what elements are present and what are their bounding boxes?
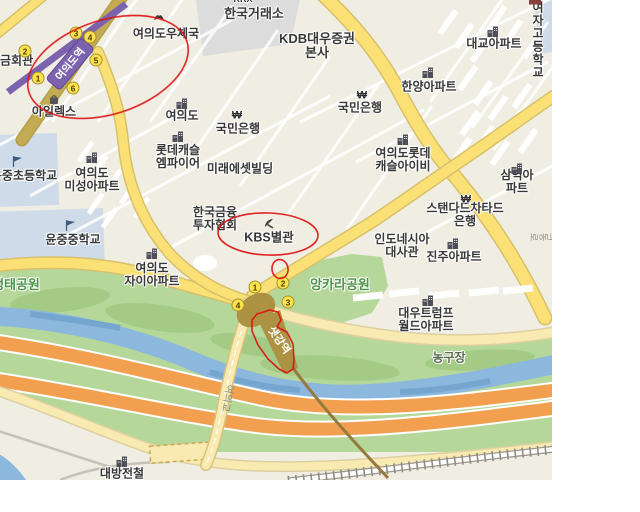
trump-world-apt-label: 대우트럼프 월드아파트 [398, 307, 453, 333]
yeouigyo-bridge-label: 여의교 [218, 383, 233, 412]
yeouido-exit-5: 5 [90, 54, 103, 67]
kdb-daewoo-hq-label: KDB대우증권 본사 [279, 32, 355, 60]
standard-chartered-label: 스탠다드차타드은행 [422, 202, 509, 228]
indonesia-embassy-label: 인도네시아 대사관 [374, 233, 429, 259]
apartment-icon [397, 133, 410, 145]
saetgang-exit-3: 3 [282, 296, 295, 309]
basketball-court-label: 농구장 [432, 352, 465, 365]
girls-high-school-label: 여의도여자 고등학교 [531, 0, 545, 79]
korea-exchange-label: 한국거래소 [224, 7, 284, 21]
jinju-apt-label: 진주아파트 [426, 251, 481, 264]
mirae-asset-label: 미래에셋빌딩 [207, 163, 273, 176]
yeouido-exit-4: 4 [84, 31, 97, 44]
krx-label-partial: KRX [233, 0, 252, 5]
yeouido-exit-2: 2 [19, 45, 32, 58]
yeouido-building-label: 여의도 [165, 110, 198, 123]
apartment-icon [422, 66, 435, 78]
kookmin-bank-west-label: 국민은행 [216, 123, 260, 136]
daekyo-apt-label: 대교아파트 [466, 38, 521, 51]
apartment-icon [176, 97, 189, 109]
lotte-castle-empire-label: 롯데캐슬 엠파이어 [156, 144, 200, 170]
flag-icon [64, 219, 77, 232]
flag-icon [11, 155, 24, 168]
hanyang-apt-label: 한양아파트 [401, 81, 456, 94]
yeouido-xi-apt-label: 여의도 자이아파트 [124, 262, 179, 288]
map-label-layer: 여의도역 KRX한국거래소KDB대우증권 본사여의도우체국여의도여자 고등학교대… [0, 0, 552, 480]
school-icon [529, 0, 541, 5]
apartment-icon [146, 247, 159, 259]
map-canvas[interactable]: 여의도역 KRX한국거래소KDB대우증권 본사여의도우체국여의도여자 고등학교대… [0, 0, 552, 480]
post-office-label: 여의도우체국 [133, 28, 199, 41]
saetgang-exit-2: 2 [277, 277, 290, 290]
yeouido-exit-3: 3 [70, 27, 83, 40]
won-icon: ₩ [357, 91, 367, 102]
bag-icon [48, 93, 60, 105]
daebang-rail-label: 대방전철 [100, 468, 144, 480]
yeouido-exit-1: 1 [32, 72, 45, 85]
apartment-icon [116, 455, 129, 467]
antenna-icon [263, 217, 276, 230]
saetgang-station-label: 샛강역 [264, 325, 291, 357]
yeouido-exit-6: 6 [67, 82, 80, 95]
apartment-icon [487, 25, 500, 37]
yunjung-middle-school-label: 윤중중학교 [45, 234, 100, 247]
ankara-park-label: 앙카라공원 [310, 278, 370, 292]
apartment-icon [422, 294, 435, 306]
screenshot-root: { "palette": { "bg_beige": "#f0ede3", "r… [0, 0, 640, 512]
kbs-annex-label: KBS별관 [244, 231, 293, 245]
post-icon [153, 12, 165, 22]
won-icon: ₩ [461, 195, 471, 206]
ilex-label: 아일렉스 [32, 106, 76, 119]
apartment-icon [447, 237, 460, 249]
saetgang-eco-park-label: 샛강생태공원 [0, 278, 40, 292]
kookmin-bank-east-label: 국민은행 [338, 102, 382, 115]
misung-apt-label: 여의도 미성아파트 [64, 167, 119, 193]
apartment-icon [86, 151, 99, 163]
kofia-label: 한국금융 투자협회 [193, 206, 237, 232]
saetgang-exit-1: 1 [249, 281, 262, 294]
apartment-icon [172, 130, 185, 142]
yeouidong-ro-label: 여의동로 [528, 233, 552, 241]
yunjung-elementary-label: 윤중초등학교 [0, 170, 57, 183]
apartment-icon [511, 162, 524, 174]
saetgang-exit-4: 4 [232, 299, 245, 312]
won-icon: ₩ [232, 111, 242, 122]
lotte-castle-ivy-label: 여의도롯데 캐슬아이비 [375, 147, 430, 173]
